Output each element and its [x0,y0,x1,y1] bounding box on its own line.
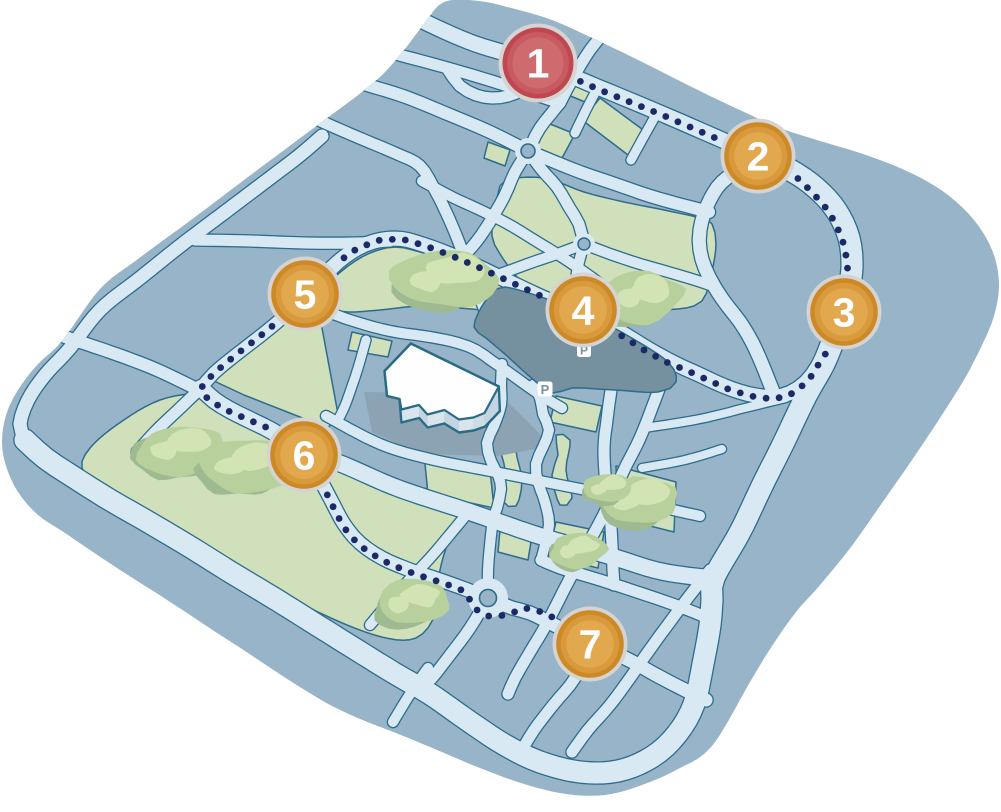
svg-text:4: 4 [572,288,595,334]
svg-text:P: P [541,382,550,397]
svg-text:5: 5 [294,272,317,318]
svg-text:6: 6 [293,433,316,479]
svg-text:7: 7 [579,622,602,668]
svg-text:3: 3 [833,290,856,336]
svg-text:1: 1 [527,41,550,87]
svg-text:2: 2 [747,134,770,180]
